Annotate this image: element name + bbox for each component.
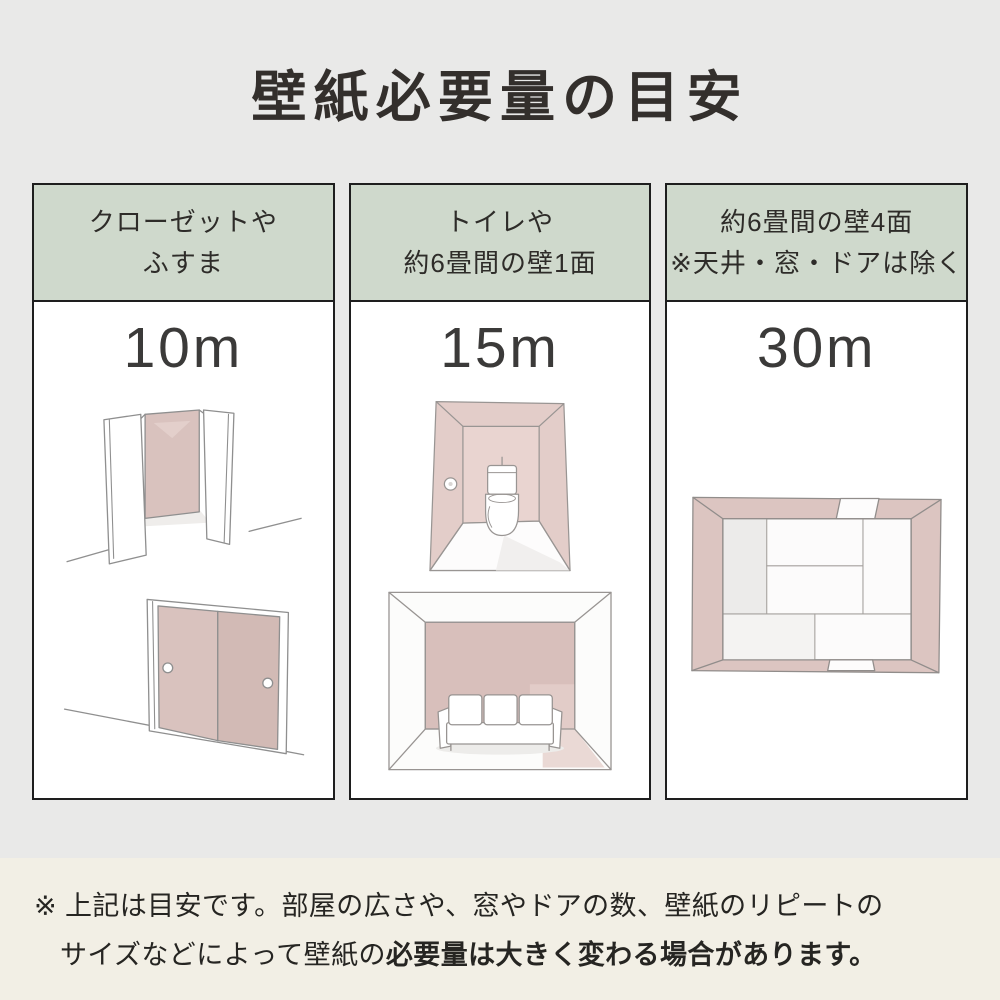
footnote-line2-normal: サイズなどによって壁紙の (60, 940, 386, 970)
column-header-closet-fusuma: クローゼットや ふすま (34, 185, 333, 302)
header-line1: クローゼットや (89, 202, 278, 242)
column-card-toilet-one-wall: トイレや 約6畳間の壁1面 15m (349, 183, 652, 800)
header-line1: トイレや (446, 202, 554, 242)
title-area: 壁紙必要量の目安 (0, 0, 1000, 183)
footnote-line2: サイズなどによって壁紙の必要量は大きく変わる場合があります。 (34, 931, 1000, 980)
amount-label-10m: 10m (124, 320, 243, 377)
footnote: ※ 上記は目安です。部屋の広さや、窓やドアの数、壁紙のリピートの サイズなどによ… (0, 858, 1000, 1000)
room-one-accent-wall-sofa-illustration (382, 586, 618, 776)
header-line1: 約6畳間の壁4面 (720, 202, 913, 242)
footnote-line2-bold: 必要量は大きく変わる場合があります。 (386, 940, 877, 970)
page-title: 壁紙必要量の目安 (251, 52, 748, 132)
header-line2: 約6畳間の壁1面 (403, 243, 596, 283)
column-body-toilet-one-wall: 15m (351, 302, 650, 798)
column-header-toilet-one-wall: トイレや 約6畳間の壁1面 (351, 185, 650, 302)
header-line2: ※天井・窓・ドアは除く (670, 243, 963, 283)
footnote-line1-text: 上記は目安です。部屋の広さや、窓やドアの数、壁紙のリピートの (65, 891, 884, 921)
column-card-closet-fusuma: クローゼットや ふすま 10m (32, 183, 335, 800)
column-card-four-walls: 約6畳間の壁4面 ※天井・窓・ドアは除く 30m (665, 183, 968, 800)
illustration-stack (34, 383, 333, 784)
illustration-stack (667, 383, 966, 784)
header-line2: ふすま (143, 243, 224, 283)
guide-table: クローゼットや ふすま 10m (32, 183, 968, 800)
footnote-marker: ※ (34, 891, 57, 921)
footnote-line1: ※ 上記は目安です。部屋の広さや、窓やドアの数、壁紙のリピートの (34, 882, 1000, 931)
amount-label-30m: 30m (757, 320, 876, 377)
toilet-room-illustration (397, 391, 603, 577)
illustration-stack (351, 383, 650, 784)
six-tatami-room-top-view-illustration (678, 472, 956, 696)
column-header-four-walls: 約6畳間の壁4面 ※天井・窓・ドアは除く (667, 185, 966, 302)
fusuma-sliding-doors-illustration (58, 594, 308, 770)
column-body-four-walls: 30m (667, 302, 966, 798)
column-body-closet-fusuma: 10m (34, 302, 333, 798)
open-closet-illustration (58, 397, 308, 579)
amount-label-15m: 15m (440, 320, 559, 377)
